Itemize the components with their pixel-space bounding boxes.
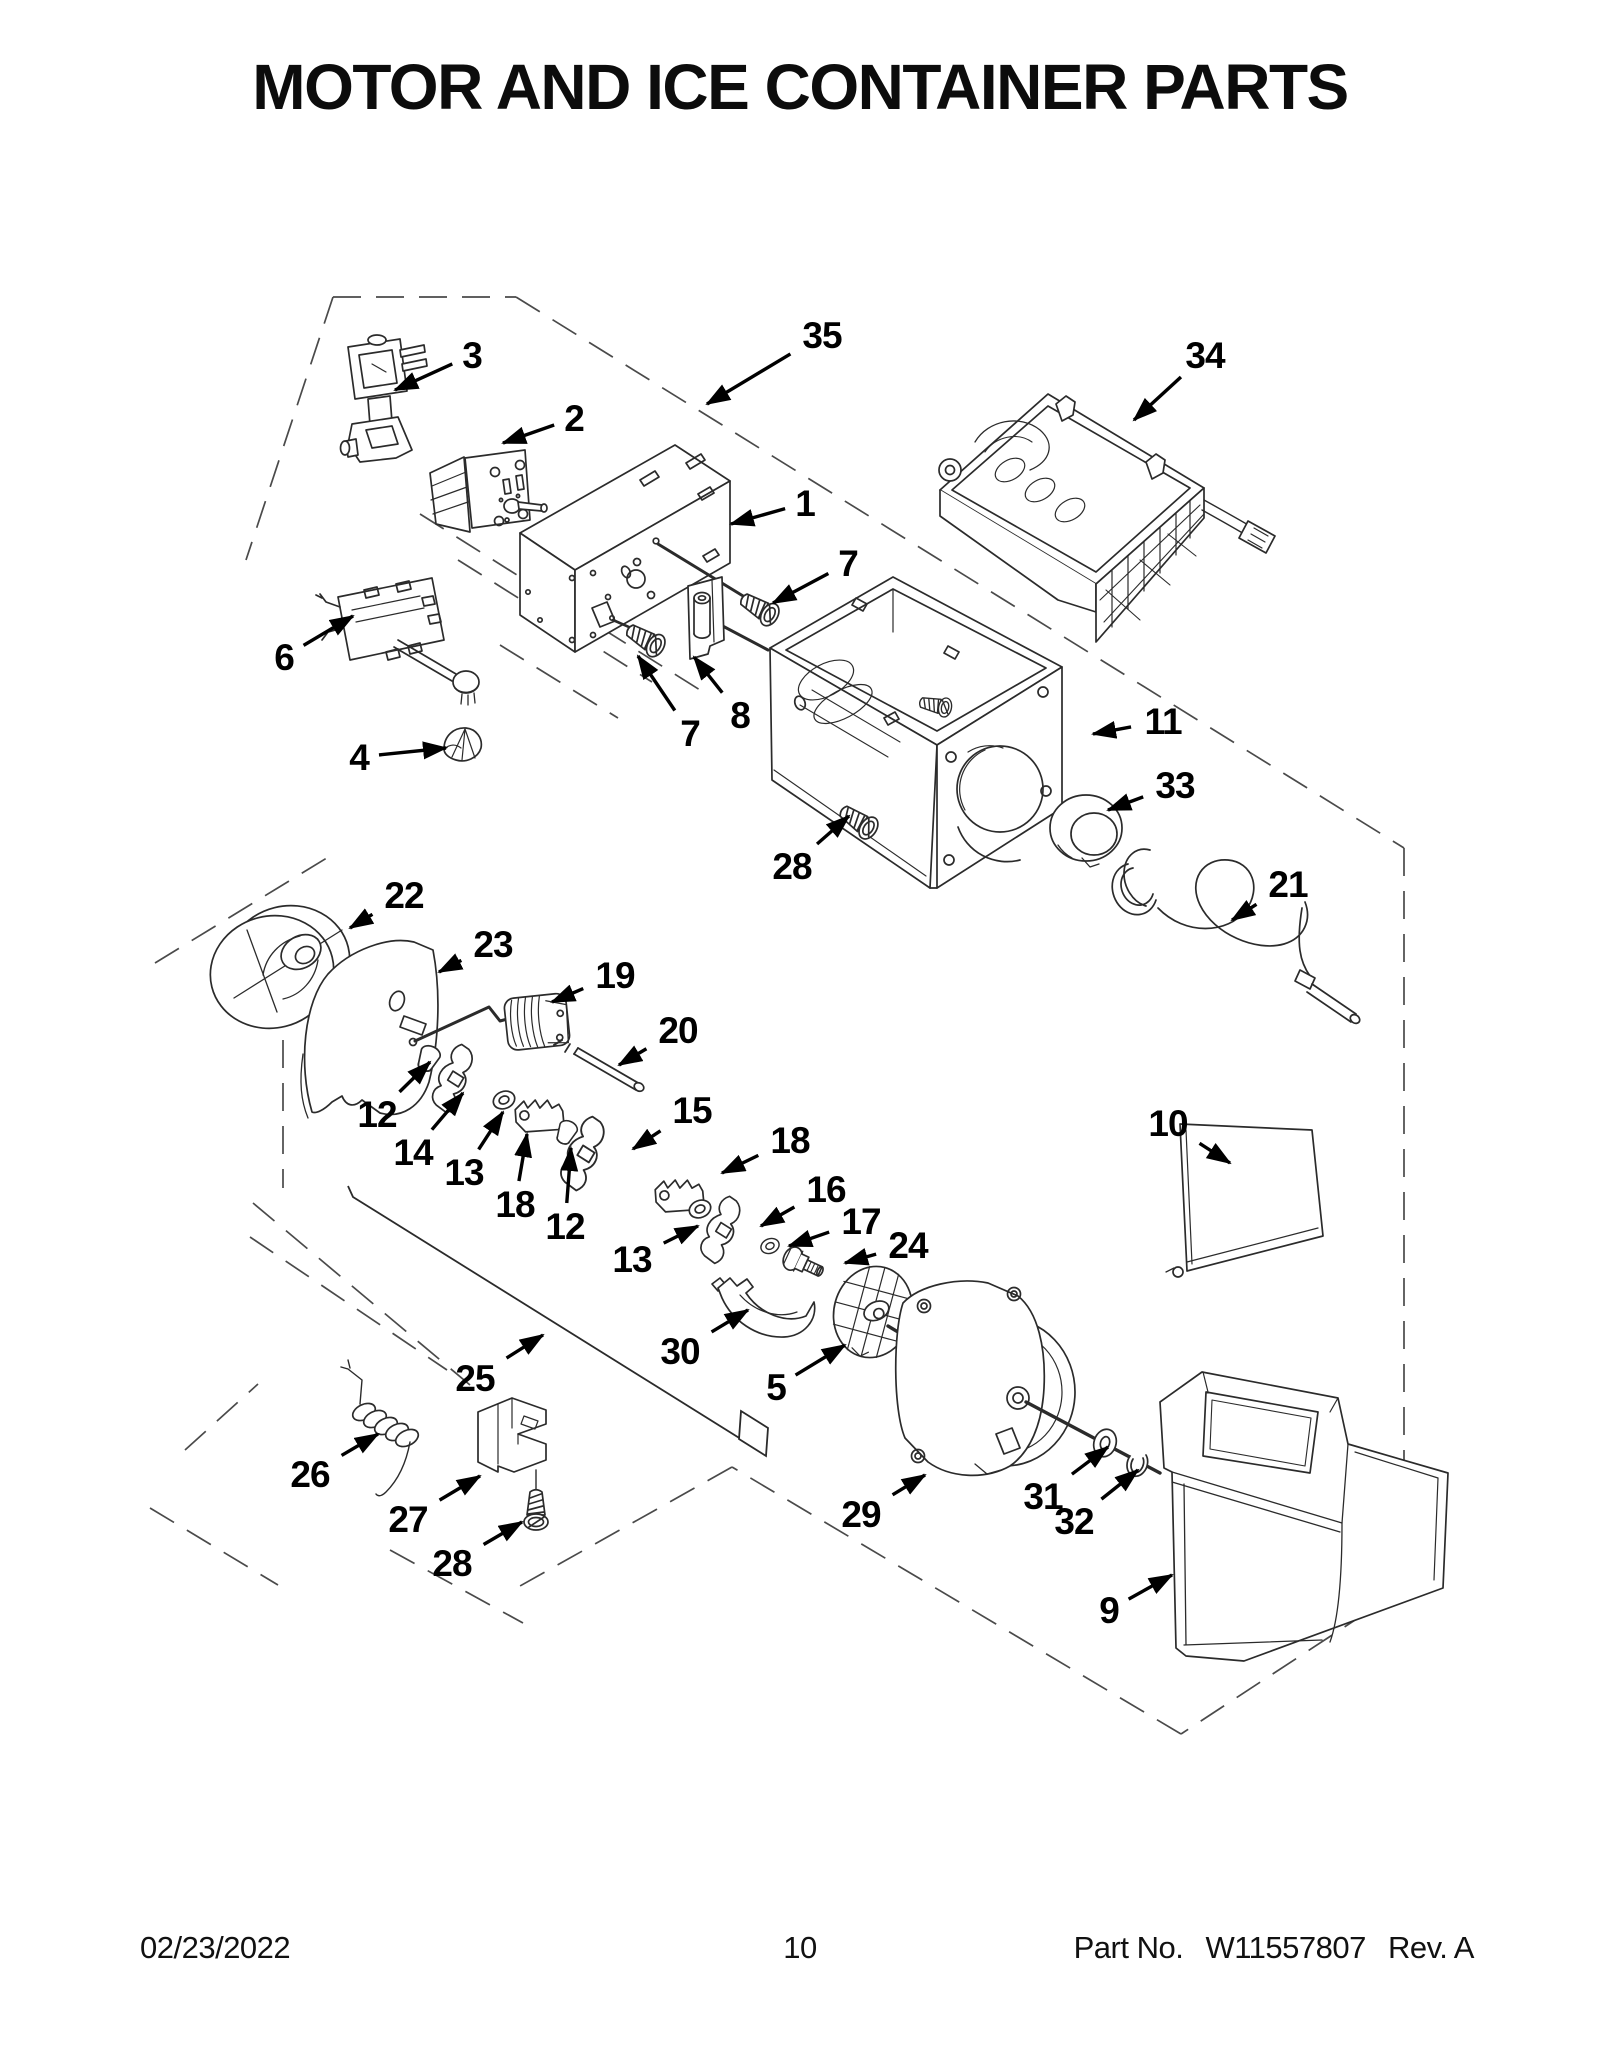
callout-13-label: 13 [612, 1239, 652, 1280]
callout-29-arrow [893, 1475, 925, 1495]
part-7-screw [622, 619, 669, 660]
part-10-flap [1166, 1124, 1323, 1277]
callout-15-arrow [633, 1131, 660, 1149]
callout-25-arrow [507, 1335, 543, 1358]
callout-2-label: 2 [564, 398, 584, 439]
callout-30-label: 30 [660, 1331, 700, 1372]
callout-23-label: 23 [473, 924, 513, 965]
callout-11-label: 11 [1144, 701, 1182, 742]
callout-18-arrow [722, 1155, 758, 1173]
callout-27-label: 27 [388, 1499, 427, 1540]
footer-part-info: Part No. W11557807 Rev. A [1074, 1930, 1474, 1966]
part-20-shaft [554, 1040, 645, 1093]
part-3-solenoid [341, 335, 428, 462]
callout-9-label: 9 [1099, 1590, 1119, 1631]
callout-26-label: 26 [290, 1454, 330, 1495]
callout-21-label: 21 [1268, 864, 1308, 905]
part-8-spacer [688, 577, 724, 659]
callout-19-label: 19 [595, 955, 635, 996]
part-29-motor [896, 1281, 1160, 1475]
callout-13-arrow [664, 1226, 698, 1243]
callout-27-arrow [440, 1476, 480, 1500]
callout-31-arrow [1072, 1447, 1108, 1474]
part-32-retainer-ring [1127, 1455, 1148, 1476]
callout-20-label: 20 [658, 1010, 698, 1051]
part-26-spring [341, 1360, 421, 1496]
part-31-washer [1090, 1426, 1120, 1459]
callout-12-label: 12 [357, 1094, 397, 1135]
part-7-screw [736, 588, 783, 629]
part-27-clip [478, 1398, 546, 1472]
callout-7-arrow [773, 573, 828, 603]
part-6-wiring-harness [316, 578, 479, 705]
part-33-bearing-cap [1050, 795, 1156, 915]
callout-18-label: 18 [495, 1184, 535, 1225]
callout-23-arrow [439, 960, 461, 972]
callout-14-label: 14 [393, 1132, 434, 1173]
callout-24-arrow [845, 1254, 876, 1263]
callout-7-arrow [638, 656, 675, 711]
part-24-bolt [780, 1244, 828, 1283]
part-4-cap [444, 728, 481, 761]
part-19-coupler [503, 993, 570, 1051]
part-2-gear-motor [430, 450, 547, 532]
callout-28-label: 28 [432, 1543, 472, 1584]
callout-2-arrow [503, 425, 554, 443]
phantom-bottom-left [520, 1467, 732, 1586]
footer-part-number: W11557807 [1205, 1930, 1365, 1965]
exploded-parts-diagram: 1234567789101112121313141516171818192021… [0, 0, 1600, 2071]
callout-1-arrow [731, 509, 785, 524]
callout-6-label: 6 [274, 637, 294, 678]
callout-13-label: 13 [444, 1152, 484, 1193]
callout-22-arrow [350, 914, 372, 928]
part-30-chute [712, 1278, 815, 1337]
callout-5-arrow [796, 1345, 845, 1375]
footer-part-label: Part No. [1074, 1930, 1184, 1965]
phantom-left-edge [246, 297, 333, 560]
callout-7-label: 7 [838, 543, 858, 584]
callout-32-arrow [1101, 1470, 1138, 1499]
part-28-screw [524, 1470, 548, 1530]
callout-9-arrow [1129, 1575, 1172, 1599]
callout-32-label: 32 [1054, 1501, 1094, 1542]
part-17-washer [759, 1236, 782, 1256]
callout-26-arrow [342, 1434, 378, 1455]
part-11-ice-container [770, 577, 1062, 888]
callout-8-label: 8 [730, 695, 750, 736]
part-21-coil [1124, 849, 1361, 1025]
part-34-ice-maker [939, 394, 1275, 642]
callout-13-arrow [479, 1112, 503, 1149]
callout-29-label: 29 [841, 1494, 881, 1535]
callout-15-label: 15 [672, 1090, 712, 1131]
callout-34-arrow [1134, 377, 1181, 420]
callout-20-arrow [619, 1049, 646, 1065]
callout-1-label: 1 [795, 483, 815, 524]
callout-25-label: 25 [455, 1358, 495, 1399]
callout-4-arrow [379, 748, 446, 755]
callout-22-label: 22 [384, 875, 424, 916]
callout-17-arrow [789, 1232, 829, 1246]
callout-10-label: 10 [1148, 1103, 1188, 1144]
callout-12-label: 12 [545, 1206, 585, 1247]
footer-revision: Rev. A [1388, 1930, 1474, 1965]
callout-35-label: 35 [802, 315, 842, 356]
callout-24-label: 24 [888, 1225, 929, 1266]
callout-35-arrow [707, 354, 790, 404]
callout-33-arrow [1108, 797, 1143, 810]
callout-7-label: 7 [680, 713, 700, 754]
callout-18-arrow [519, 1134, 527, 1181]
callout-8-arrow [694, 657, 722, 693]
callout-5-label: 5 [766, 1367, 786, 1408]
callout-17-label: 17 [841, 1201, 880, 1242]
callout-16-arrow [761, 1207, 794, 1226]
callout-4-label: 4 [349, 737, 370, 778]
callout-21-arrow [1232, 904, 1256, 920]
callout-28-arrow [484, 1522, 522, 1544]
callout-18-label: 18 [770, 1120, 810, 1161]
callout-28-label: 28 [772, 846, 812, 887]
parts [198, 335, 1448, 1661]
callout-16-label: 16 [806, 1169, 846, 1210]
callout-34-label: 34 [1185, 335, 1226, 376]
callout-11-arrow [1093, 727, 1131, 734]
callout-3-label: 3 [462, 335, 482, 376]
part-13-washer [491, 1088, 518, 1112]
callout-33-label: 33 [1155, 765, 1195, 806]
